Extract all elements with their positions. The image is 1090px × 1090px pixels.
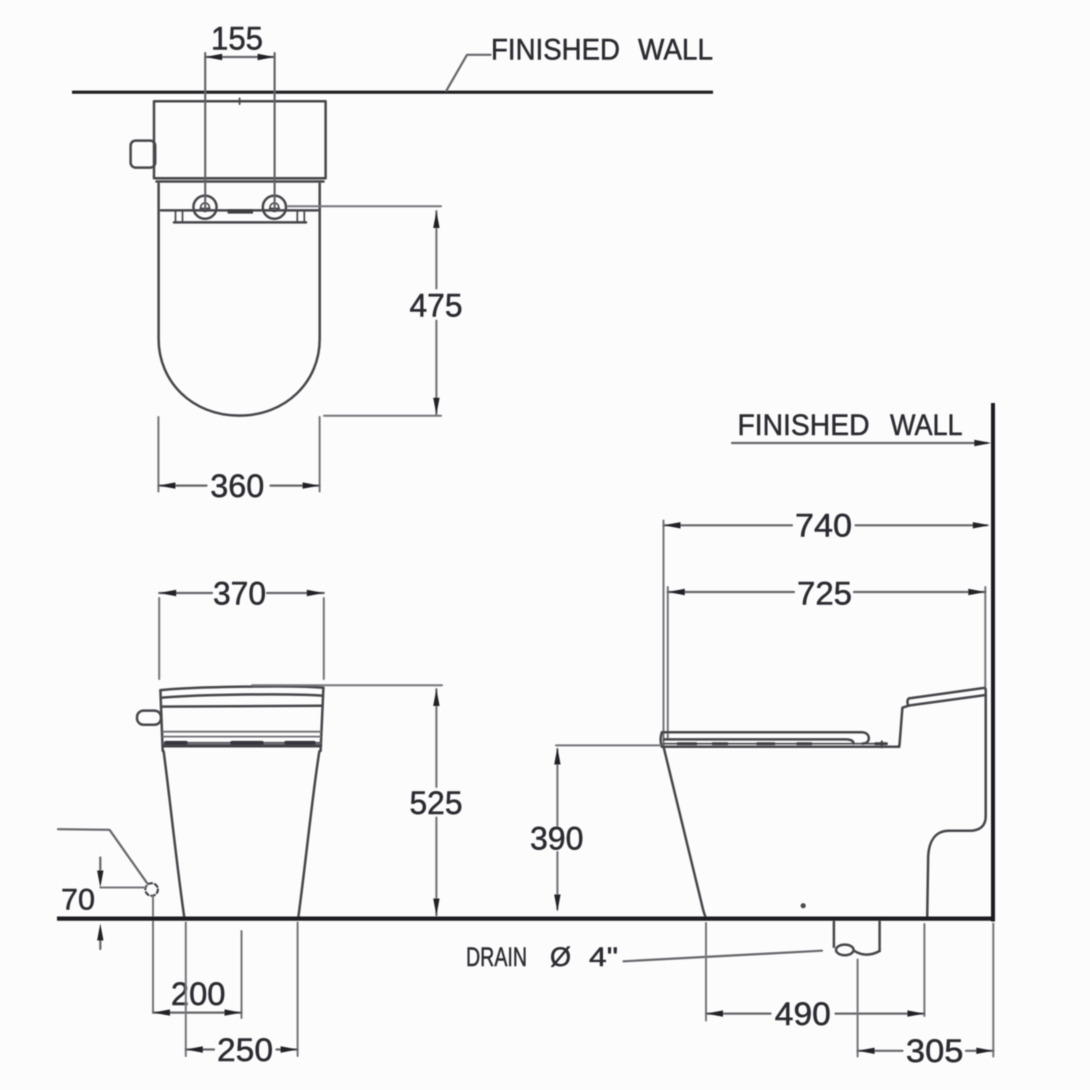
- svg-text:305: 305: [906, 1033, 964, 1069]
- svg-text:FINISHED: FINISHED: [491, 34, 620, 67]
- svg-text:490: 490: [775, 996, 831, 1032]
- svg-text:WALL: WALL: [638, 34, 713, 67]
- svg-text:4": 4": [589, 942, 618, 972]
- svg-text:DRAIN: DRAIN: [466, 942, 527, 972]
- svg-text:FINISHED: FINISHED: [738, 409, 870, 442]
- svg-text:250: 250: [217, 1032, 273, 1068]
- svg-text:390: 390: [530, 821, 584, 857]
- svg-text:475: 475: [410, 288, 463, 324]
- svg-text:155: 155: [211, 21, 263, 57]
- svg-text:360: 360: [210, 468, 264, 504]
- svg-text:725: 725: [797, 576, 852, 612]
- svg-text:525: 525: [410, 785, 463, 821]
- svg-text:370: 370: [213, 576, 266, 612]
- svg-text:740: 740: [795, 508, 852, 544]
- svg-text:70: 70: [61, 884, 95, 917]
- svg-text:200: 200: [171, 976, 226, 1012]
- svg-text:Ø: Ø: [550, 942, 571, 972]
- svg-text:WALL: WALL: [890, 409, 963, 442]
